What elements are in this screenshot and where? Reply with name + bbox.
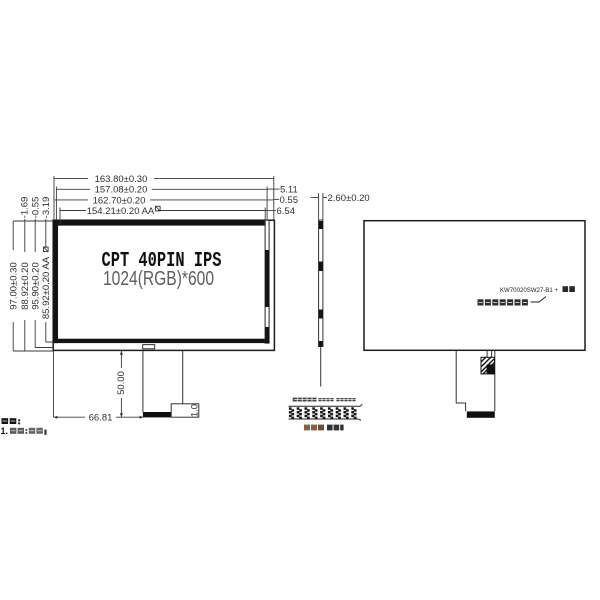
svg-text:157.08±0.20: 157.08±0.20 [95,185,148,196]
svg-text:2.60±0.20: 2.60±0.20 [328,193,370,204]
svg-text:85.92±0.20 AA: 85.92±0.20 AA [41,256,52,319]
svg-text:1024(RGB)*600: 1024(RGB)*600 [103,268,214,290]
svg-text:1.: 1. [1,426,9,436]
svg-text:154.21±0.20 AA: 154.21±0.20 AA [87,206,155,217]
svg-text:66.81: 66.81 [89,413,113,424]
svg-text:50.00: 50.00 [116,371,127,395]
svg-text:162.70±0.20: 162.70±0.20 [93,195,146,206]
svg-text:0.55: 0.55 [280,195,299,206]
svg-text:-1.69: -1.69 [20,197,31,219]
svg-text:1.0: 1.0 [189,404,200,417]
svg-text:95.90±0.20: 95.90±0.20 [31,262,42,309]
svg-text:-0.55: -0.55 [31,197,42,219]
svg-text:6.54: 6.54 [277,206,296,217]
svg-text:163.80±0.30: 163.80±0.30 [95,174,148,185]
svg-text:97.00±0.30: 97.00±0.30 [9,262,20,309]
svg-text:-3.19: -3.19 [41,197,52,219]
svg-text:88.92±0.20: 88.92±0.20 [20,262,31,309]
svg-text:KW70020SW27-B1 +: KW70020SW27-B1 + [500,287,558,294]
